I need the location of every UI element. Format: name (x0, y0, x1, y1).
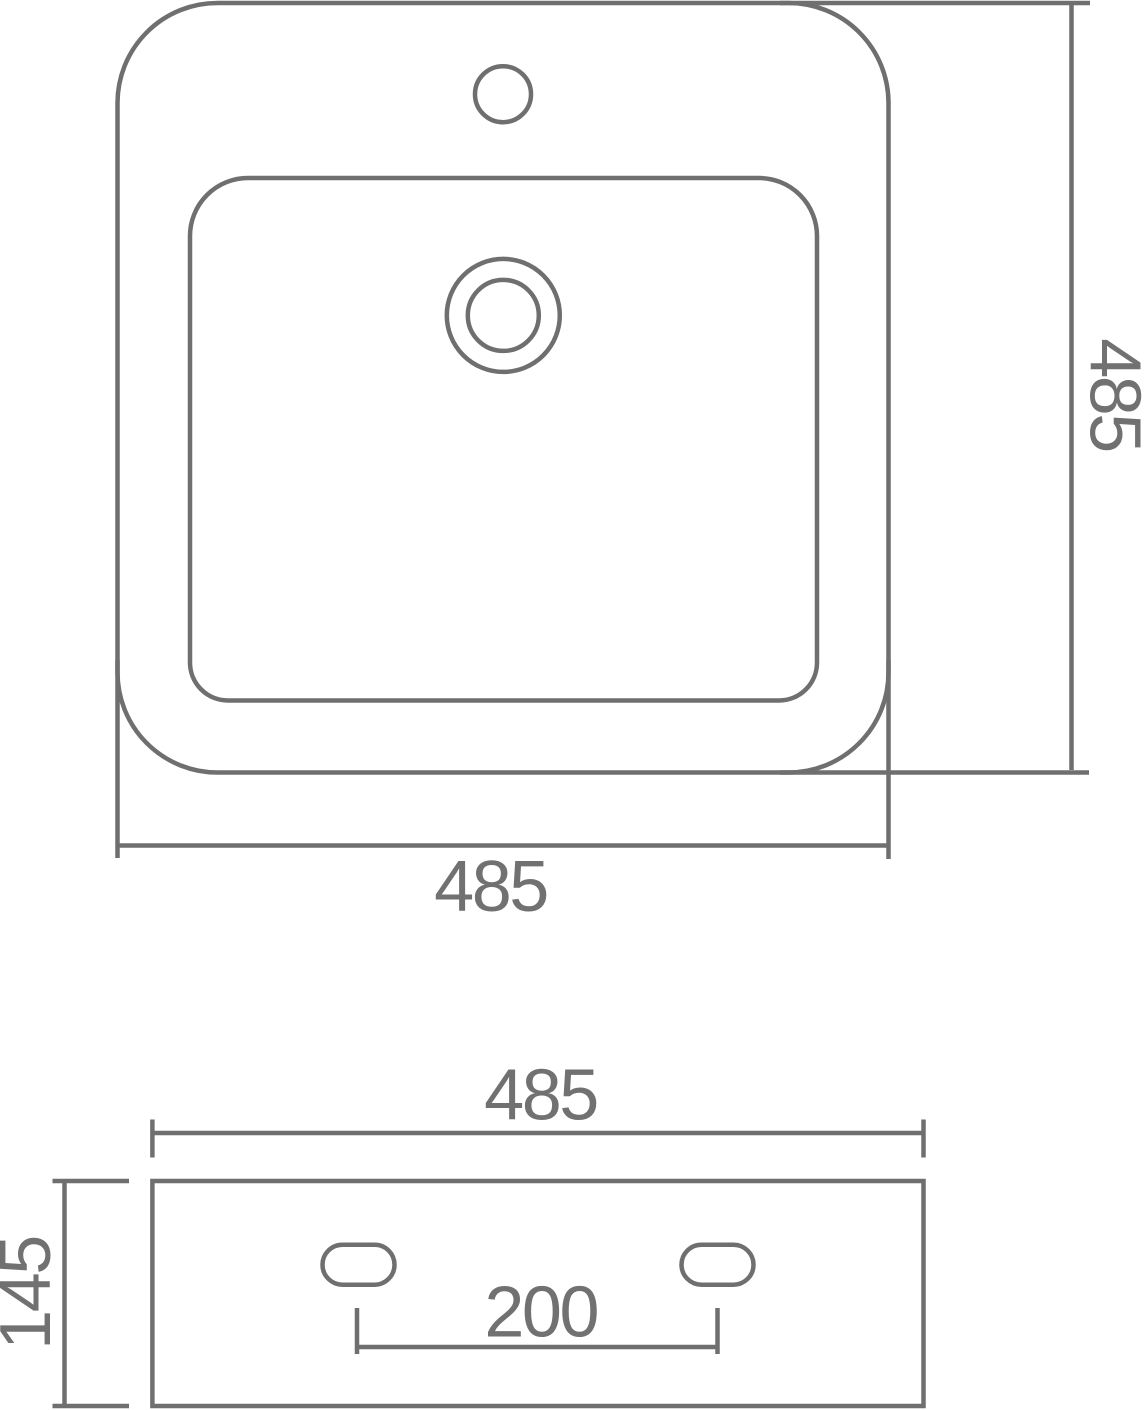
svg-text:485: 485 (1075, 338, 1144, 451)
svg-text:485: 485 (434, 847, 547, 927)
svg-text:145: 145 (0, 1237, 66, 1350)
svg-text:485: 485 (484, 1056, 597, 1136)
svg-text:200: 200 (484, 1273, 597, 1353)
